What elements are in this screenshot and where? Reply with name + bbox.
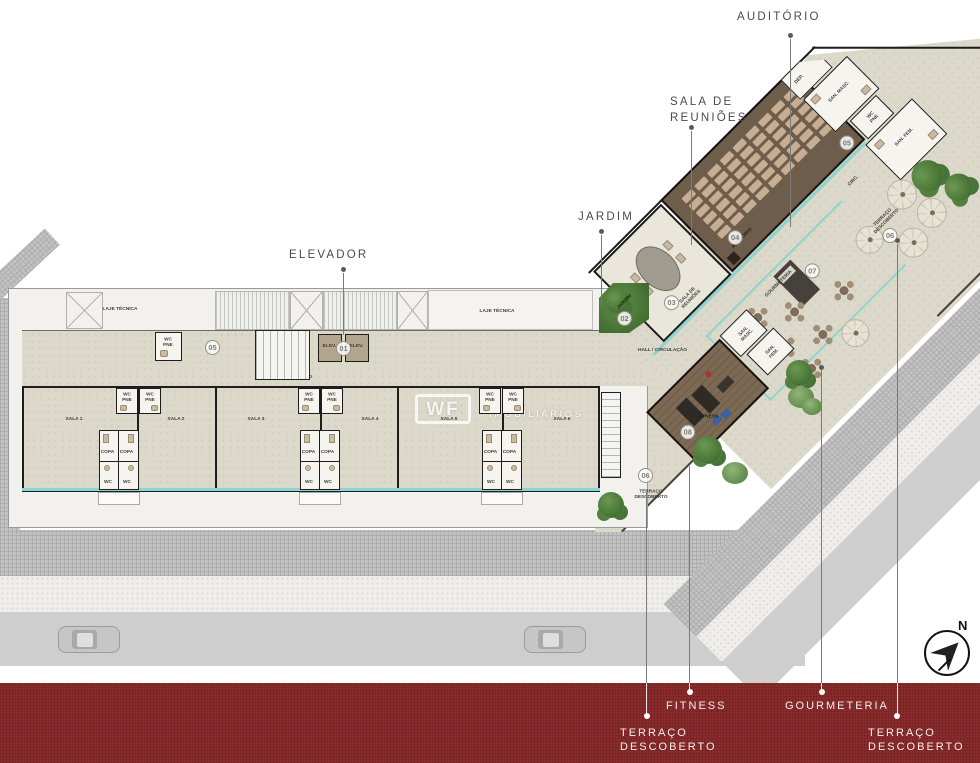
badge-restrooms-wing: 05 <box>839 135 854 150</box>
leader-line <box>691 131 692 245</box>
room-label-sala2: SALA 2 <box>152 417 200 422</box>
label-terraco-left: TERRAÇODESCOBERTO <box>620 726 717 754</box>
entry-stoop <box>98 492 140 505</box>
leader-dot <box>689 125 694 130</box>
car <box>524 626 586 653</box>
leader-dot-white <box>644 713 650 719</box>
room-wc-pne: WC PNE <box>321 388 343 414</box>
bush <box>802 398 822 415</box>
laje-tecnica-label: LAJE TÉCNICA <box>92 307 148 312</box>
badge-jardim: 02 <box>617 311 632 326</box>
label-fitness: FITNESS <box>666 700 726 712</box>
leader-dot <box>599 229 604 234</box>
badge-gourmeteria: 07 <box>805 263 820 278</box>
tree <box>694 436 722 464</box>
leader-dot-white <box>894 713 900 719</box>
leader-line <box>790 39 791 227</box>
copa-wc-cluster: COPACOPA WCWC <box>300 430 340 490</box>
leader-line <box>897 244 898 683</box>
leader-line <box>601 235 602 307</box>
room-wc-pne: WC PNE <box>155 332 182 361</box>
leader-dot-white <box>687 689 693 695</box>
tree <box>598 492 624 518</box>
callout-auditorio: AUDITÓRIO <box>737 11 821 23</box>
entry-stoop <box>299 492 341 505</box>
copa-wc-cluster: COPACOPA WCWC <box>482 430 522 490</box>
badge-meeting-room: 03 <box>664 295 679 310</box>
leader-dot <box>788 33 793 38</box>
stairs-east <box>601 392 621 478</box>
leader-dot <box>895 238 900 243</box>
tree <box>786 360 812 386</box>
label-gourmeteria: GOURMETERIA <box>785 700 889 712</box>
car <box>58 626 120 653</box>
leader-line <box>343 273 344 335</box>
room-wc-pne: WC PNE <box>139 388 161 414</box>
callout-sala-reunioes: SALA DEREUNIÕES <box>670 94 748 126</box>
bush <box>722 462 748 484</box>
badge-elevator: 01 <box>336 341 351 356</box>
badge-auditorium: 04 <box>728 230 743 245</box>
compass-north-label: N <box>958 618 967 633</box>
pavement-band-bottom <box>0 576 775 612</box>
room-label-sala3: SALA 3 <box>232 417 280 422</box>
roof-ribs <box>215 291 290 330</box>
entry-stoop <box>481 492 523 505</box>
room-wc-pne: WC PNE <box>116 388 138 414</box>
floor-plan-canvas: LAJE TÉCNICA LAJE TÉCNICA HALL / CIRCULA… <box>0 0 980 763</box>
leader-dot-white <box>819 689 825 695</box>
leader-dot <box>341 267 346 272</box>
room-label-terraco-lower: TERRAÇO DESCOBERTO <box>633 489 669 499</box>
room-label-sala4: SALA 4 <box>346 417 394 422</box>
room-wc-pne: WC PNE <box>502 388 524 414</box>
callout-jardim: JARDIM <box>578 211 634 223</box>
copa-wc-cluster: COPACOPA WCWC <box>99 430 139 490</box>
roof-truss <box>397 291 428 330</box>
roof-ribs <box>323 291 397 330</box>
room-wc-pne: WC PNE <box>479 388 501 414</box>
leader-line <box>689 466 690 683</box>
compass: N <box>918 618 980 684</box>
leader-line <box>646 492 647 683</box>
hall-label: HALL / CIRCULAÇÃO <box>625 348 701 353</box>
sidewalk-band-bottom <box>0 530 745 576</box>
room-wc-pne: WC PNE <box>298 388 320 414</box>
room-label-sala1: SALA 1 <box>50 417 98 422</box>
leader-line-white <box>897 683 898 714</box>
north-arrow-icon <box>924 630 970 676</box>
leader-line <box>821 370 822 683</box>
leader-line-white <box>646 683 647 714</box>
red-band <box>0 683 980 763</box>
roof-truss <box>290 291 323 330</box>
badge-terrace-lower: 06 <box>638 468 653 483</box>
label-terraco-right: TERRAÇODESCOBERTO <box>868 726 965 754</box>
room-label-fitness: FITNESS <box>698 414 718 419</box>
callout-elevador: ELEVADOR <box>289 249 368 261</box>
badge-restrooms-hall: 05 <box>205 340 220 355</box>
stairs-main <box>255 330 310 380</box>
laje-tecnica-label: LAJE TÉCNICA <box>469 309 525 314</box>
watermark-logo: WF <box>415 394 471 424</box>
badge-fitness: 08 <box>680 425 695 440</box>
